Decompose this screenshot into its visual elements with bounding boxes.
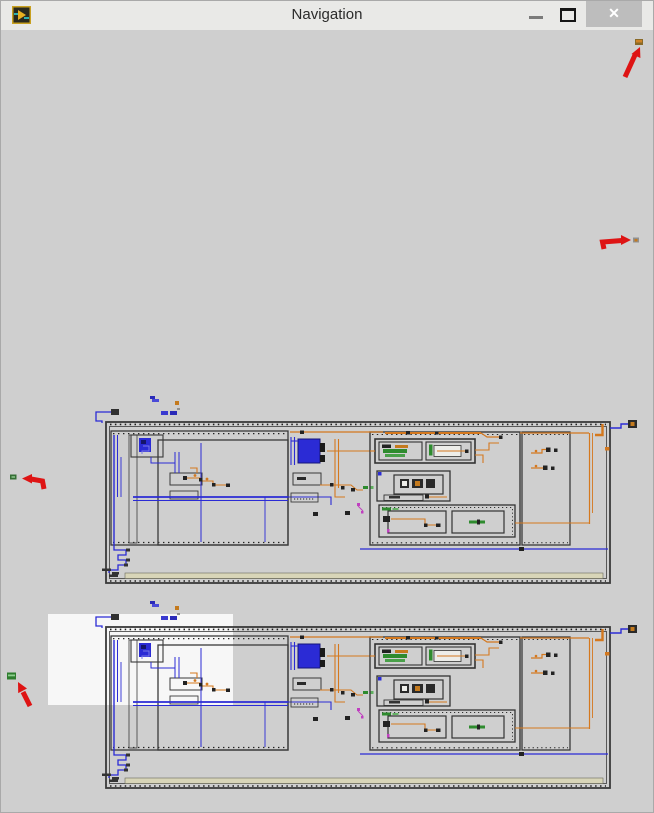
close-icon: ✕ [608,5,620,22]
minimize-icon [529,16,543,19]
window-controls: ✕ [522,0,642,27]
minimize-button[interactable] [522,0,549,27]
close-button[interactable]: ✕ [586,0,642,27]
block-diagram-thumbnail-top[interactable] [95,393,640,593]
titlebar[interactable]: Navigation ✕ [0,0,654,30]
maximize-icon [560,8,576,22]
block-diagram-thumbnail-bottom[interactable] [95,598,640,798]
maximize-button[interactable] [554,0,581,27]
